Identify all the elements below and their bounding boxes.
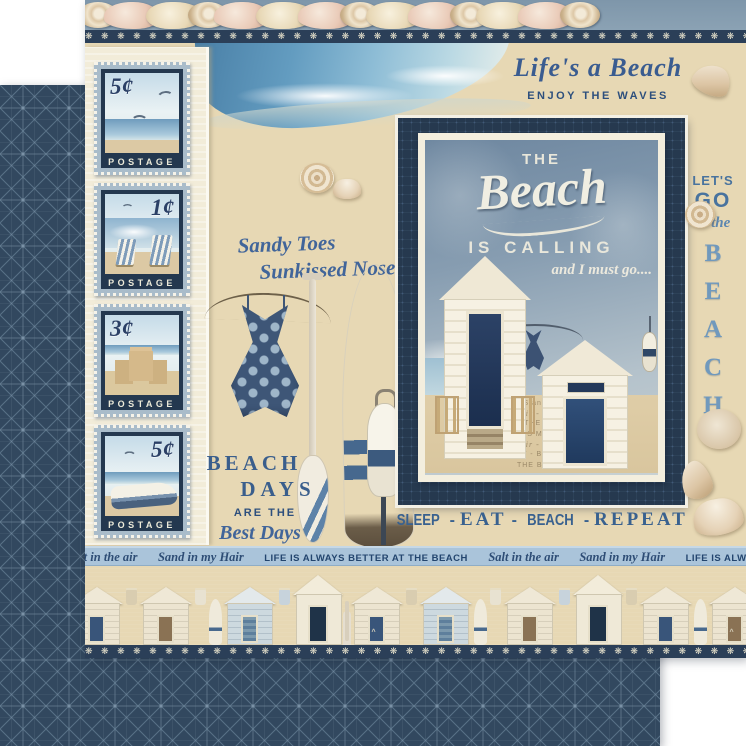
border-hut — [85, 587, 121, 645]
polka-dot-swimsuit — [231, 305, 299, 417]
letter-c: C — [682, 349, 744, 387]
laundry-icon — [279, 590, 290, 605]
life-is-better-text: LIFE IS ALWAYS BETTER AT THE BEACH — [264, 553, 468, 564]
hut-roof — [537, 340, 633, 376]
letter-e: E — [682, 273, 744, 311]
beach-is-calling-poster: THE Beach IS CALLING and I must go.... H… — [398, 118, 685, 505]
beach-hut-large — [439, 256, 531, 473]
nautilus-shell-icon — [560, 2, 600, 28]
poster-mat: THE Beach IS CALLING and I must go.... H… — [418, 133, 665, 482]
stamp-postage-label: POSTAGE — [101, 278, 183, 288]
salt-in-the-air-text: Salt in the air — [85, 550, 138, 564]
stamp-value: 5¢ — [110, 74, 133, 100]
beach-vertical-letters: B E A C H — [682, 235, 744, 425]
beach-hut-small — [537, 340, 633, 473]
border-hut — [142, 587, 190, 645]
shell-glyph-divider-bottom: ❋ ❋ ❋ ❋ ❋ ❋ ❋ ❋ ❋ ❋ ❋ ❋ ❋ ❋ ❋ ❋ ❋ ❋ ❋ ❋ … — [85, 645, 746, 658]
border-hut: ^ — [353, 587, 401, 645]
poster-buoy — [642, 332, 657, 372]
best-days-script: Best Days — [185, 522, 335, 545]
beach-scene: Life's a Beach ENJOY THE WAVES 5¢ — [85, 43, 746, 546]
poster-script-line: and I must go.... — [552, 262, 652, 279]
poster-title: Beach — [425, 154, 658, 224]
lets-label: LET'S — [682, 173, 744, 188]
motto-word: SLEEP — [397, 512, 440, 530]
stamp-postage-label: POSTAGE — [101, 399, 183, 409]
hut-steps — [467, 429, 503, 449]
border-hut — [422, 587, 470, 645]
border-hut-tall — [295, 575, 341, 645]
motto-word: REPEAT — [594, 509, 688, 531]
sea — [105, 472, 179, 484]
letter-a: A — [682, 311, 744, 349]
hut-door — [563, 396, 607, 466]
sand — [105, 140, 179, 153]
motto-word: BEACH — [527, 512, 574, 530]
motto-separator: - — [450, 512, 455, 530]
hut-window — [567, 382, 605, 393]
porch-rail — [511, 396, 535, 434]
laundry-icon — [126, 590, 137, 605]
surfboard-icon — [474, 599, 487, 645]
clam-shell-icon — [333, 179, 361, 199]
seagull-icon — [122, 204, 134, 213]
postage-stamp-seagulls: 5¢ POSTAGE — [94, 62, 190, 175]
sleep-eat-beach-repeat-motto: SLEEP-EAT-BEACH-REPEAT — [380, 509, 700, 531]
oar-shaft — [309, 279, 316, 464]
stamp-value: 5¢ — [151, 437, 174, 463]
hut-door — [466, 311, 504, 429]
sand-in-my-hair-text: Sand in my Hair — [158, 550, 244, 564]
stamp-value: 1¢ — [151, 195, 174, 221]
postage-stamp-sandcastle: 3¢ POSTAGE — [94, 304, 190, 417]
seagull-icon — [156, 90, 175, 105]
motto-word: EAT — [460, 509, 507, 531]
laundry-icon — [559, 590, 570, 605]
surfboard-icon — [694, 599, 707, 645]
letter-b: B — [682, 235, 744, 273]
postage-stamp-rowboat: 5¢ POSTAGE — [94, 425, 190, 538]
sandcastle-icon — [129, 351, 153, 381]
salt-in-the-air-text: Salt in the air — [488, 550, 559, 564]
beach-days-word1: BEACH — [185, 451, 323, 476]
deck-chair-icon — [149, 235, 172, 265]
stamp-postage-label: POSTAGE — [101, 157, 183, 167]
stamp-value: 3¢ — [110, 316, 133, 342]
paper-front-side: ❋ ❋ ❋ ❋ ❋ ❋ ❋ ❋ ❋ ❋ ❋ ❋ ❋ ❋ ❋ ❋ ❋ ❋ ❋ ❋ … — [85, 0, 746, 658]
oar-icon — [345, 601, 349, 641]
sand-dollar-icon — [697, 409, 741, 449]
spiral-shell-icon — [300, 163, 334, 193]
surfboard-icon — [209, 599, 222, 645]
laundry-icon — [626, 590, 637, 605]
scrapbook-paper-product-shot: ❋ ❋ ❋ ❋ ❋ ❋ ❋ ❋ ❋ ❋ ❋ ❋ ❋ ❋ ❋ ❋ ❋ ❋ ❋ ❋ … — [0, 0, 746, 746]
beach-hut-border: ^ ^ — [85, 566, 746, 645]
poster-art: THE Beach IS CALLING and I must go.... H… — [425, 140, 658, 475]
postage-stamp-beach-chairs: 1¢ POSTAGE — [94, 183, 190, 296]
border-hut — [226, 587, 274, 645]
sandy-toes-line1: Sandy Toes — [196, 229, 377, 260]
deck-chair-icon — [116, 239, 137, 265]
beach-days-word2: DAYS — [211, 477, 345, 502]
motto-separator: - — [584, 512, 589, 530]
tagline-caps: ENJOY THE WAVES — [465, 90, 731, 102]
hut-row: ^ ^ — [85, 566, 746, 645]
seashell-border-top — [85, 0, 746, 30]
hut-roof — [439, 256, 531, 300]
border-hut — [642, 587, 690, 645]
shell-glyph-divider-top: ❋ ❋ ❋ ❋ ❋ ❋ ❋ ❋ ❋ ❋ ❋ ❋ ❋ ❋ ❋ ❋ ❋ ❋ ❋ ❋ … — [85, 30, 746, 43]
motto-separator: - — [512, 512, 517, 530]
buoy — [367, 403, 402, 497]
beach-days-text: BEACH DAYS ARE THE Best Days — [185, 451, 345, 545]
phrase-strip: Salt in the air Sand in my Hair LIFE IS … — [85, 546, 746, 566]
border-hut: ^ — [711, 587, 746, 645]
laundry-icon — [406, 590, 417, 605]
poster-subtitle: IS CALLING — [425, 238, 658, 258]
border-hut-tall — [575, 575, 621, 645]
sand-in-my-hair-text: Sand in my Hair — [579, 550, 665, 564]
are-the-label: ARE THE — [185, 507, 345, 519]
laundry-icon — [490, 590, 501, 605]
porch-rail — [435, 396, 459, 434]
life-is-better-text: LIFE IS ALWAYS BETTER AT THE BEACH — [686, 553, 746, 564]
border-hut — [506, 587, 554, 645]
spiral-shell-icon — [685, 201, 715, 228]
laundry-icon — [195, 590, 206, 605]
seagull-icon — [123, 451, 137, 461]
sea — [105, 119, 179, 141]
stamp-postage-label: POSTAGE — [101, 520, 183, 530]
